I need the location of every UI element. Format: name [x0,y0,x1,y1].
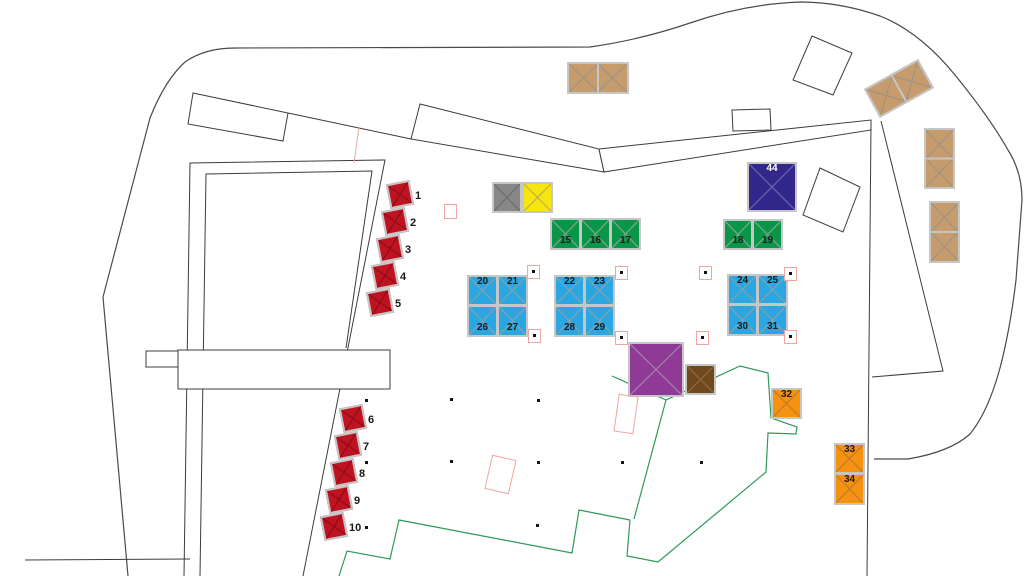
booth-x-pattern [754,221,781,248]
booth-red-2 [381,207,409,236]
booth-number-3: 3 [405,244,411,256]
booth-x-pattern [931,203,958,261]
booth-blue-30: 30 [727,304,758,336]
site-plan: 1234567891015161744181920212627222328292… [0,0,1024,576]
booth-x-pattern [773,390,800,417]
booth-red-5 [366,288,394,317]
booth-x-pattern [341,406,365,430]
booth-navy-44: 44 [747,162,797,212]
booth-tan-top [567,62,629,94]
booth-green-19: 19 [752,219,783,250]
pink-corner-marker [699,266,712,280]
booth-x-pattern [469,277,496,304]
booth-x-pattern [612,220,639,248]
marker-dot [532,270,535,273]
booth-x-pattern [322,514,346,538]
booth-green-17: 17 [610,218,641,250]
pink-corner-marker [615,266,628,280]
booth-x-pattern [378,236,402,260]
survey-mark [537,461,540,464]
pink-corner-marker [527,265,540,279]
marker-dot [704,271,707,274]
booth-orange-32: 32 [771,388,802,419]
booth-red-4 [371,261,399,290]
booth-x-pattern [586,307,613,335]
booth-red-7 [334,431,362,460]
booth-number-4: 4 [400,271,406,283]
booth-x-pattern [383,209,407,233]
booth-x-pattern [556,277,583,304]
survey-mark [621,461,624,464]
booth-number-6: 6 [368,414,374,426]
booth-red-8 [330,458,358,487]
booth-red-10 [320,512,348,541]
empty-plot-outline [613,394,638,434]
booth-green-18: 18 [723,219,753,250]
booth-x-pattern [630,344,682,395]
marker-dot [620,271,623,274]
pink-corner-marker [615,331,628,345]
booth-blue-23: 23 [584,275,615,306]
booth-x-pattern [586,277,613,304]
booth-blue-22: 22 [554,275,585,306]
pink-corner-marker [528,329,541,343]
booth-purple [628,342,684,397]
booth-x-pattern [494,184,520,211]
booth-x-pattern [332,460,356,484]
booth-x-pattern [373,263,397,287]
survey-mark [450,460,453,463]
booth-tan-rot [864,59,934,118]
marker-dot [789,335,792,338]
booth-number-8: 8 [359,468,365,480]
booth-blue-27: 27 [497,305,528,337]
survey-mark [365,526,368,529]
booth-tan-v1 [924,128,955,189]
booth-x-pattern [729,276,756,303]
marker-dot [533,334,536,337]
booth-number-5: 5 [395,298,401,310]
booth-x-pattern [336,433,360,457]
booth-blue-20: 20 [467,275,498,306]
booth-red-1 [386,180,414,209]
booth-x-pattern [867,62,932,115]
empty-plot-outline [484,455,516,495]
booth-orange-33: 33 [834,443,865,474]
marker-dot [620,336,623,339]
booth-x-pattern [759,276,786,303]
booth-x-pattern [759,306,786,334]
survey-mark [700,461,703,464]
booth-red-3 [376,234,404,263]
booth-blue-26: 26 [467,305,498,337]
survey-mark [536,524,539,527]
booth-blue-21: 21 [497,275,528,306]
survey-mark [537,399,540,402]
booth-brown [685,364,716,395]
survey-mark [450,398,453,401]
booth-x-pattern [729,306,756,334]
survey-mark [365,399,368,402]
booth-orange-34: 34 [834,473,865,505]
booth-number-2: 2 [410,217,416,229]
booth-x-pattern [499,277,526,304]
booth-blue-28: 28 [554,305,585,337]
survey-mark [365,461,368,464]
booth-x-pattern [327,487,351,511]
booth-x-pattern [836,475,863,503]
booth-x-pattern [687,366,714,393]
booth-x-pattern [926,130,953,187]
booth-number-7: 7 [363,441,369,453]
booth-x-pattern [368,290,392,314]
booth-x-pattern [388,182,412,206]
booth-x-pattern [469,307,496,335]
booth-green-15: 15 [550,218,581,250]
booth-x-pattern [556,307,583,335]
booth-yellow [522,182,553,213]
booth-x-pattern [552,220,579,248]
marker-dot [789,272,792,275]
booth-blue-24: 24 [727,274,758,305]
pink-corner-marker [784,330,797,344]
booth-gray [492,182,522,213]
pink-corner-marker [696,331,709,345]
marker-dot [701,336,704,339]
booth-x-pattern [725,221,751,248]
empty-plot-outline [444,204,457,219]
pink-corner-marker [784,267,797,281]
booth-tan-v2 [929,201,960,263]
booth-red-9 [325,485,353,514]
booth-x-pattern [836,445,863,472]
booth-red-6 [339,404,367,433]
booth-green-16: 16 [580,218,611,250]
booth-x-pattern [524,184,551,211]
booth-x-pattern [569,64,627,92]
booth-x-pattern [749,164,795,210]
booth-number-10: 10 [349,522,361,534]
booth-number-1: 1 [415,190,421,202]
booth-x-pattern [582,220,609,248]
booth-x-pattern [499,307,526,335]
booth-number-9: 9 [354,495,360,507]
booth-blue-29: 29 [584,305,615,337]
booth-layer: 1234567891015161744181920212627222328292… [0,0,1024,576]
